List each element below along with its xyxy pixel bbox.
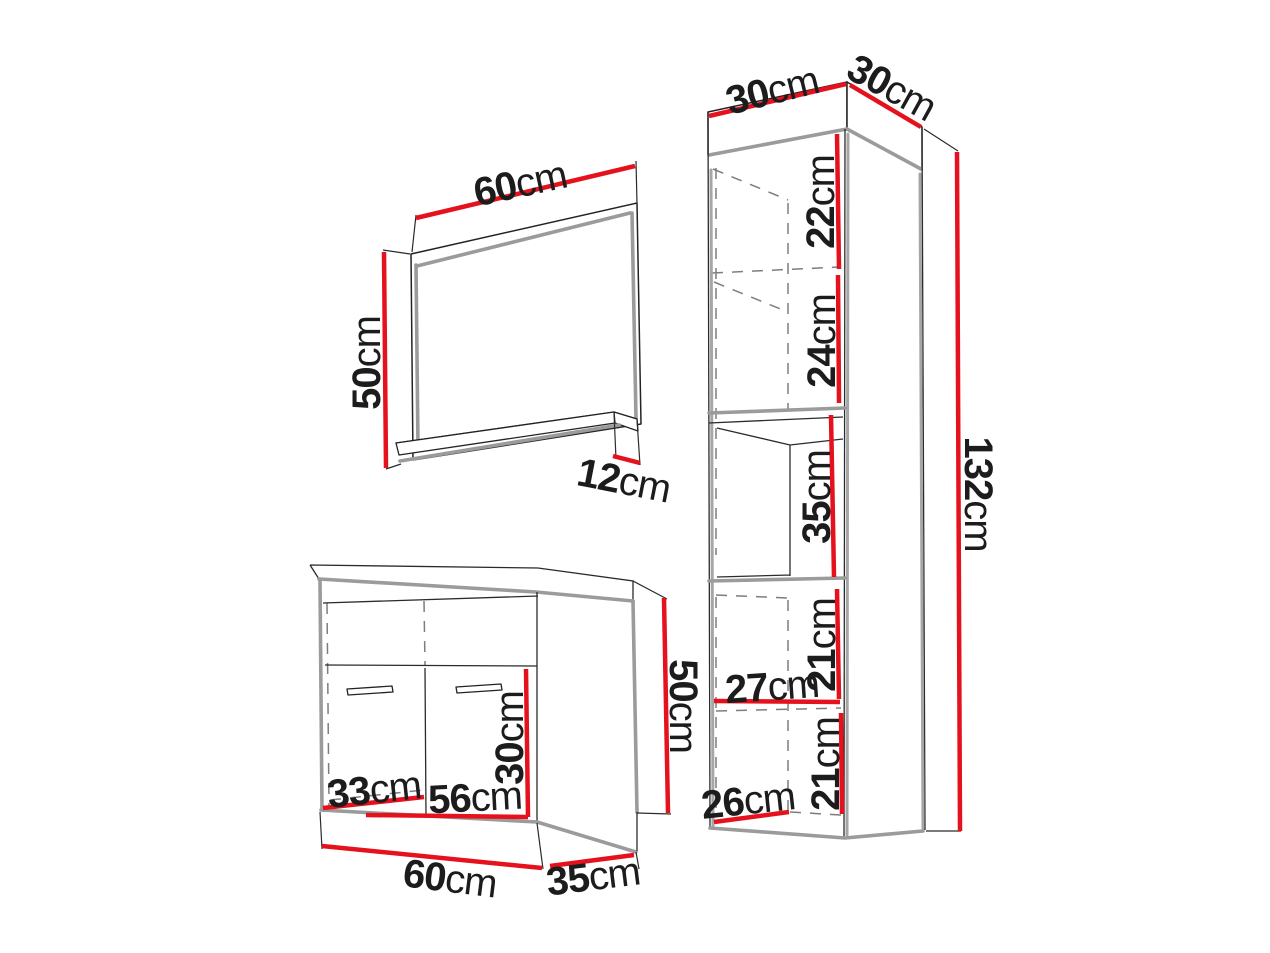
dimension-label: 56cm xyxy=(427,774,523,823)
dimension-value: 35 xyxy=(795,501,839,544)
section-5-dimension: 21cm xyxy=(804,713,848,814)
dimension-unit: cm xyxy=(345,316,389,367)
section-2-dimension: 24cm xyxy=(800,275,844,403)
dimension-unit: cm xyxy=(766,662,820,709)
diagram-page: 60cm 50cm 12cm xyxy=(0,0,1270,953)
dimension-value: 50 xyxy=(661,659,705,702)
dimension-value: 27 xyxy=(724,665,769,712)
dimension-unit: cm xyxy=(367,763,423,812)
dimension-unit: cm xyxy=(804,717,848,768)
dimension-value: 56 xyxy=(427,776,472,822)
cabinet-depth-dimension: 35cm xyxy=(544,849,642,904)
cabinet-side-face xyxy=(536,592,637,851)
dimension-unit: cm xyxy=(956,500,1000,551)
dimension-value: 50 xyxy=(345,367,389,410)
dimension-label: 60cm xyxy=(470,153,571,216)
furniture-dimension-diagram: 60cm 50cm 12cm xyxy=(0,0,1270,953)
dimension-label: 21cm xyxy=(804,717,848,811)
left-edge-shading xyxy=(320,580,322,810)
dimension-unit: cm xyxy=(586,849,642,899)
dimension-value: 132 xyxy=(956,436,1000,500)
dimension-unit: cm xyxy=(795,450,839,501)
dimension-label: 27cm xyxy=(724,662,821,712)
dimension-value: 22 xyxy=(799,206,843,249)
dimension-label: 12cm xyxy=(574,450,674,511)
dimension-unit: cm xyxy=(511,153,570,207)
dimension-unit: cm xyxy=(488,691,532,742)
mirror-height-dimension: 50cm xyxy=(345,250,410,469)
dimension-unit: cm xyxy=(741,774,797,823)
dimension-unit: cm xyxy=(615,459,674,512)
cabinet-side-face xyxy=(845,129,923,838)
dimension-label: 60cm xyxy=(401,851,499,906)
dimension-label: 50cm xyxy=(345,316,389,410)
dimension-unit: cm xyxy=(800,598,844,649)
dimension-value: 35 xyxy=(544,856,592,905)
dimension-label: 132cm xyxy=(956,436,1000,551)
dimension-label: 22cm xyxy=(799,155,843,249)
cabinet-height-dimension: 132cm xyxy=(924,129,1000,831)
dimension-value: 33 xyxy=(325,769,372,817)
tall-cabinet: 30cm 30cm 22cm 24cm 35cm 21cm 27cm xyxy=(699,46,1000,838)
dimension-unit: cm xyxy=(799,155,843,206)
left-edge-shading xyxy=(711,170,713,826)
dimension-unit: cm xyxy=(661,702,705,753)
dimension-value: 60 xyxy=(401,851,449,900)
cabinet-height-dimension: 50cm xyxy=(633,581,705,814)
dimension-label: 50cm xyxy=(661,659,705,753)
dimension-label: 35cm xyxy=(795,450,839,544)
dimension-unit: cm xyxy=(469,774,523,821)
dimension-label: 24cm xyxy=(800,294,844,388)
dimension-unit: cm xyxy=(800,294,844,345)
cabinet-width-dimension: 60cm xyxy=(320,812,543,907)
dimension-label: 30cm xyxy=(488,691,532,785)
dimension-value: 21 xyxy=(804,768,848,811)
mirror: 60cm 50cm 12cm xyxy=(345,153,674,512)
dimension-unit: cm xyxy=(443,857,499,907)
dimension-value: 26 xyxy=(699,780,746,828)
dimension-value: 24 xyxy=(800,344,844,388)
washbasin-cabinet: 30cm 33cm 56cm 60cm 35cm 50cm xyxy=(310,565,705,907)
dimension-label: 35cm xyxy=(544,849,642,904)
